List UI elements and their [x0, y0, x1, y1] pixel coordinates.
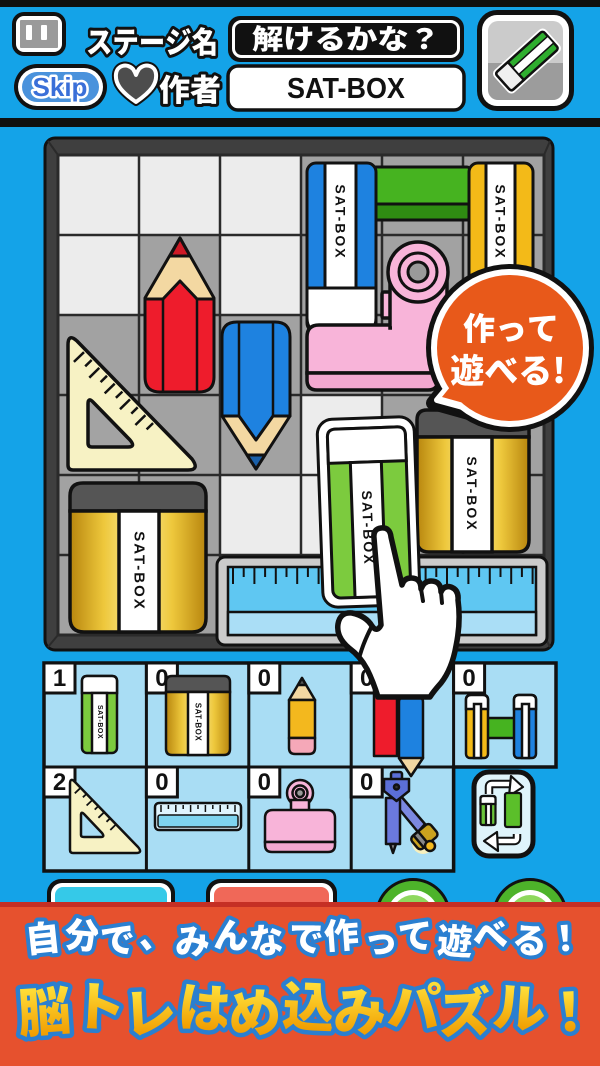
svg-text:0: 0 [360, 769, 373, 796]
svg-text:0: 0 [258, 769, 271, 796]
svg-text:SAT-BOX: SAT-BOX [131, 531, 148, 611]
svg-text:0: 0 [155, 769, 168, 796]
svg-text:0: 0 [462, 665, 475, 692]
svg-text:SAT-BOX: SAT-BOX [194, 703, 203, 742]
svg-text:SAT-BOX: SAT-BOX [333, 184, 349, 259]
svg-text:SAT-BOX: SAT-BOX [96, 705, 103, 739]
svg-text:2: 2 [53, 769, 66, 796]
svg-text:1: 1 [53, 665, 66, 692]
svg-text:0: 0 [258, 665, 271, 692]
svg-text:SAT-BOX: SAT-BOX [493, 184, 509, 259]
svg-text:SAT-BOX: SAT-BOX [464, 456, 480, 531]
svg-text:SAT-BOX: SAT-BOX [287, 72, 405, 104]
svg-text:Skip: Skip [33, 72, 88, 102]
